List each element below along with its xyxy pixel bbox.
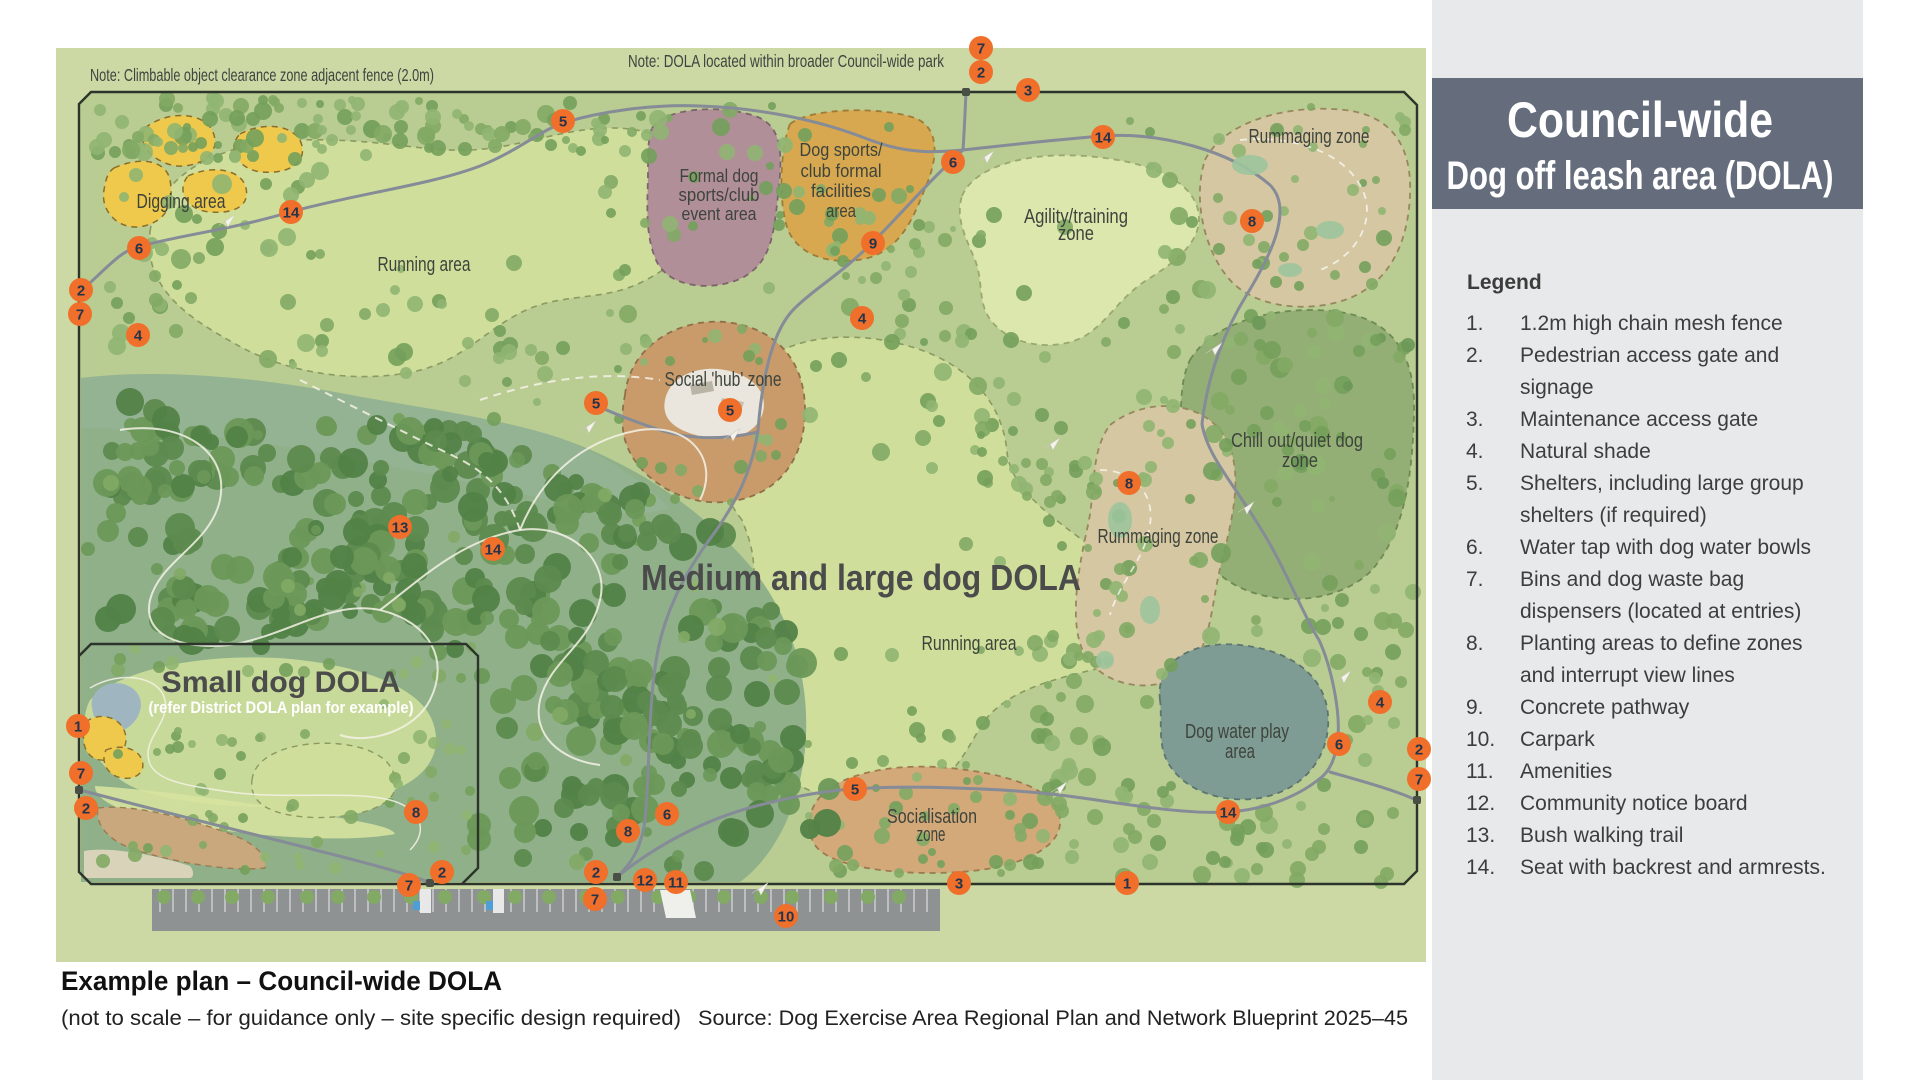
- svg-text:sports/club: sports/club: [679, 185, 760, 205]
- svg-text:Small dog DOLA: Small dog DOLA: [162, 666, 401, 699]
- svg-text:Water tap with dog water bowls: Water tap with dog water bowls: [1520, 536, 1811, 559]
- svg-text:9.: 9.: [1466, 696, 1484, 719]
- svg-text:7: 7: [591, 892, 599, 909]
- svg-text:and interrupt view lines: and interrupt view lines: [1520, 664, 1735, 687]
- svg-text:5: 5: [592, 396, 600, 413]
- svg-text:Dog off leash area (DOLA): Dog off leash area (DOLA): [1447, 154, 1834, 198]
- svg-text:Pedestrian access gate and: Pedestrian access gate and: [1520, 344, 1779, 367]
- svg-text:8: 8: [412, 805, 420, 822]
- svg-text:7.: 7.: [1466, 568, 1484, 591]
- svg-text:5: 5: [726, 403, 734, 420]
- svg-text:6.: 6.: [1466, 536, 1484, 559]
- svg-text:Running area: Running area: [378, 254, 472, 276]
- svg-text:(refer District DOLA plan for: (refer District DOLA plan for example): [149, 698, 414, 717]
- svg-text:7: 7: [76, 307, 84, 324]
- svg-text:2: 2: [82, 801, 90, 818]
- svg-text:1.2m high chain mesh fence: 1.2m high chain mesh fence: [1520, 312, 1783, 335]
- svg-text:1.: 1.: [1466, 312, 1484, 335]
- svg-text:13.: 13.: [1466, 824, 1495, 847]
- svg-text:Note: Climbable object clearan: Note: Climbable object clearance zone ad…: [90, 65, 434, 85]
- svg-text:Formal dog: Formal dog: [680, 166, 759, 186]
- svg-text:Maintenance access gate: Maintenance access gate: [1520, 408, 1758, 431]
- svg-text:Rummaging zone: Rummaging zone: [1249, 126, 1370, 148]
- svg-text:2: 2: [438, 865, 446, 882]
- svg-text:Amenities: Amenities: [1520, 760, 1612, 783]
- svg-text:11.: 11.: [1466, 760, 1494, 783]
- svg-text:Council-wide: Council-wide: [1507, 92, 1773, 148]
- svg-text:6: 6: [135, 241, 143, 258]
- svg-text:Community notice board: Community notice board: [1520, 792, 1748, 815]
- svg-text:5.: 5.: [1466, 472, 1484, 495]
- svg-text:Example plan – Council-wide DO: Example plan – Council-wide DOLA: [61, 966, 502, 996]
- svg-text:10: 10: [778, 909, 795, 926]
- svg-text:3.: 3.: [1466, 408, 1484, 431]
- svg-text:3: 3: [955, 876, 963, 893]
- svg-text:zone: zone: [1282, 450, 1318, 472]
- svg-text:Running area: Running area: [922, 633, 1018, 655]
- svg-text:Chill out/quiet dog: Chill out/quiet dog: [1231, 430, 1363, 452]
- svg-text:shelters (if required): shelters (if required): [1520, 504, 1707, 527]
- svg-text:1: 1: [1123, 876, 1131, 893]
- svg-text:4: 4: [134, 328, 143, 345]
- svg-text:Digging area: Digging area: [137, 191, 227, 213]
- svg-text:signage: signage: [1520, 376, 1594, 399]
- svg-text:6: 6: [1335, 737, 1343, 754]
- svg-text:facilities: facilities: [811, 181, 871, 201]
- svg-text:14.: 14.: [1466, 856, 1495, 879]
- svg-text:14: 14: [1095, 130, 1112, 147]
- svg-text:14: 14: [485, 542, 502, 559]
- svg-text:zone: zone: [917, 824, 946, 846]
- svg-text:Dog sports/: Dog sports/: [800, 140, 883, 160]
- svg-text:area: area: [1225, 741, 1256, 763]
- svg-text:14: 14: [283, 205, 300, 222]
- svg-text:6: 6: [663, 807, 671, 824]
- svg-text:8: 8: [1125, 476, 1133, 493]
- svg-text:11: 11: [668, 875, 684, 892]
- svg-text:1: 1: [74, 719, 82, 736]
- svg-text:Rummaging zone: Rummaging zone: [1098, 526, 1219, 548]
- svg-text:Dog water play: Dog water play: [1185, 721, 1289, 743]
- svg-text:Seat with backrest and armrest: Seat with backrest and armrests.: [1520, 856, 1826, 879]
- svg-text:(not to scale – for guidance o: (not to scale – for guidance only – site…: [61, 1007, 681, 1030]
- svg-text:Source: Dog Exercise Area Regi: Source: Dog Exercise Area Regional Plan …: [698, 1007, 1408, 1030]
- svg-text:Concrete pathway: Concrete pathway: [1520, 696, 1690, 719]
- svg-text:2: 2: [77, 283, 85, 300]
- svg-text:4: 4: [1376, 695, 1385, 712]
- svg-text:13: 13: [392, 520, 409, 537]
- svg-text:Planting areas to define zones: Planting areas to define zones: [1520, 632, 1803, 655]
- svg-text:2: 2: [592, 865, 600, 882]
- svg-text:event area: event area: [682, 204, 758, 224]
- svg-text:10.: 10.: [1466, 728, 1495, 751]
- svg-text:Shelters, including large grou: Shelters, including large group: [1520, 472, 1804, 495]
- svg-text:12: 12: [637, 873, 654, 890]
- svg-text:Natural shade: Natural shade: [1520, 440, 1651, 463]
- svg-text:4: 4: [858, 311, 867, 328]
- svg-text:7: 7: [977, 41, 985, 58]
- svg-text:area: area: [826, 201, 857, 221]
- svg-text:12.: 12.: [1466, 792, 1495, 815]
- svg-text:8: 8: [1248, 214, 1256, 231]
- svg-text:Bins and dog waste bag: Bins and dog waste bag: [1520, 568, 1744, 591]
- svg-text:2.: 2.: [1466, 344, 1484, 367]
- svg-text:dispensers (located at entries: dispensers (located at entries): [1520, 600, 1801, 623]
- svg-text:Carpark: Carpark: [1520, 728, 1595, 751]
- svg-text:4.: 4.: [1466, 440, 1484, 463]
- svg-text:Medium and large dog DOLA: Medium and large dog DOLA: [641, 557, 1081, 598]
- svg-text:6: 6: [949, 155, 957, 172]
- svg-text:Bush walking trail: Bush walking trail: [1520, 824, 1683, 847]
- svg-text:Social 'hub' zone: Social 'hub' zone: [665, 369, 782, 391]
- svg-text:8.: 8.: [1466, 632, 1484, 655]
- svg-text:7: 7: [405, 878, 413, 895]
- svg-text:8: 8: [624, 824, 632, 841]
- svg-text:14: 14: [1220, 805, 1237, 822]
- svg-text:3: 3: [1024, 83, 1032, 100]
- svg-text:Legend: Legend: [1467, 271, 1542, 294]
- svg-text:2: 2: [977, 65, 985, 82]
- svg-text:Note: DOLA located within broa: Note: DOLA located within broader Counci…: [628, 51, 944, 71]
- svg-text:club formal: club formal: [801, 161, 882, 181]
- svg-text:5: 5: [559, 114, 567, 131]
- svg-text:7: 7: [1415, 772, 1423, 789]
- svg-text:zone: zone: [1058, 223, 1094, 245]
- svg-text:9: 9: [869, 236, 877, 253]
- svg-text:2: 2: [1415, 742, 1423, 759]
- svg-text:5: 5: [851, 782, 859, 799]
- svg-text:7: 7: [77, 766, 85, 783]
